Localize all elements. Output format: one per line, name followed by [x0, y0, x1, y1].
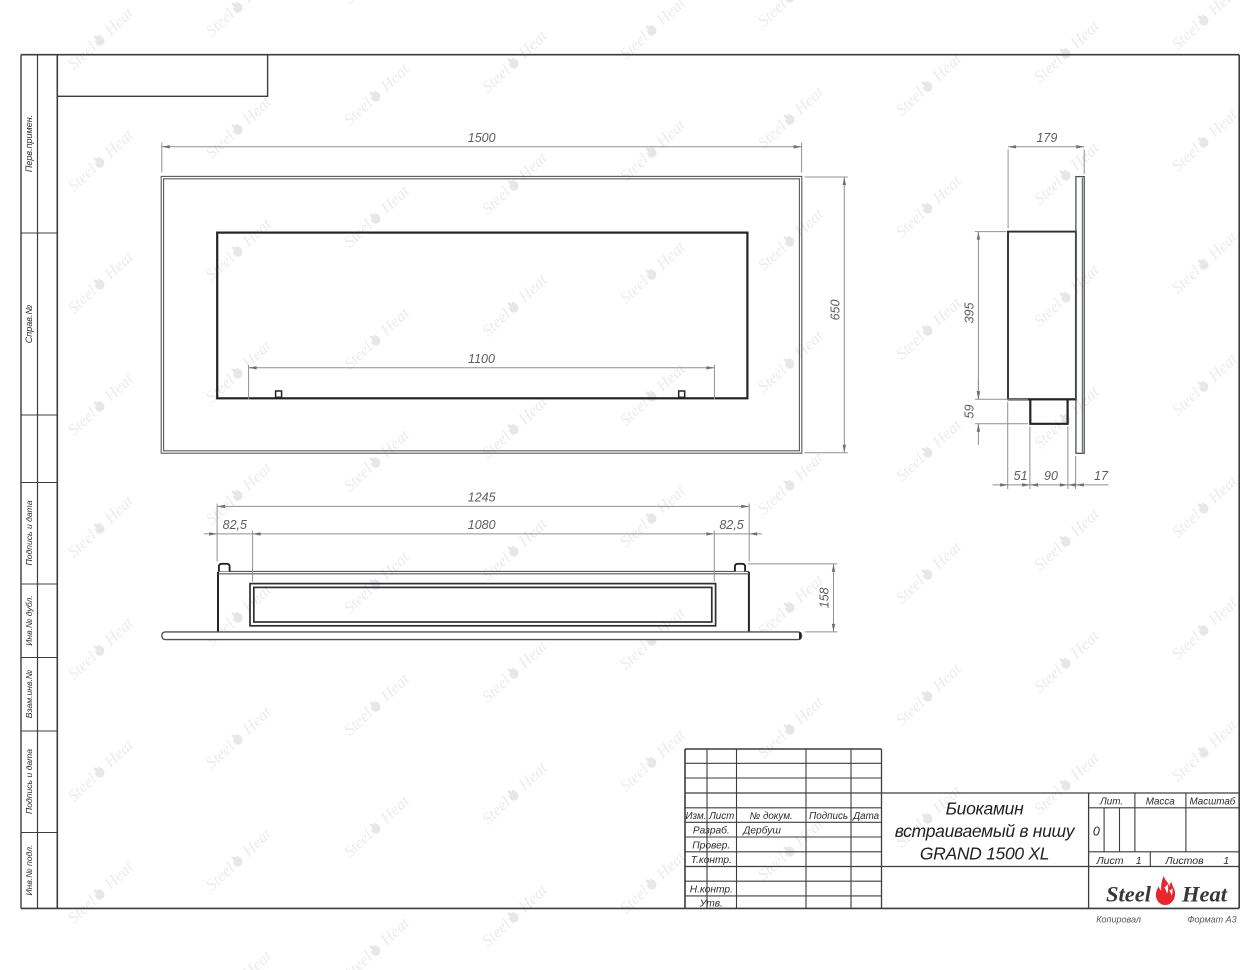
svg-text:Лит.: Лит.	[1099, 797, 1123, 808]
svg-text:Справ.№: Справ.№	[24, 305, 34, 344]
svg-text:17: 17	[1094, 469, 1109, 483]
svg-text:Steel: Steel	[1106, 882, 1152, 907]
svg-text:Разраб.: Разраб.	[693, 825, 730, 837]
svg-text:GRAND 1500 XL: GRAND 1500 XL	[920, 844, 1049, 864]
svg-text:1500: 1500	[468, 131, 496, 145]
svg-text:Провер.: Провер.	[692, 840, 730, 851]
svg-text:Масштаб: Масштаб	[1190, 797, 1236, 808]
svg-text:158: 158	[818, 587, 832, 608]
svg-text:650: 650	[829, 300, 843, 321]
svg-text:Листов: Листов	[1164, 855, 1204, 867]
svg-text:Перв.примен.: Перв.примен.	[24, 115, 34, 172]
svg-text:Подпись и дата: Подпись и дата	[24, 500, 34, 565]
svg-text:встраиваемый в нишу: встраиваемый в нишу	[895, 821, 1076, 841]
svg-text:1100: 1100	[468, 352, 495, 366]
svg-text:Дербуш: Дербуш	[742, 825, 781, 837]
svg-text:Н.контр.: Н.контр.	[690, 885, 733, 896]
svg-text:Биокамин: Биокамин	[946, 799, 1024, 819]
svg-text:59: 59	[963, 405, 977, 419]
svg-text:0: 0	[1093, 825, 1100, 839]
svg-text:Подпись и дата: Подпись и дата	[24, 749, 34, 814]
svg-text:1245: 1245	[468, 491, 496, 505]
svg-text:82,5: 82,5	[223, 518, 247, 532]
svg-text:Лист: Лист	[708, 811, 734, 822]
svg-text:Утв.: Утв.	[699, 899, 723, 910]
svg-text:Heat: Heat	[1181, 882, 1228, 907]
svg-text:Масса: Масса	[1146, 797, 1176, 808]
svg-text:Подпись: Подпись	[809, 811, 848, 822]
svg-text:Т.контр.: Т.контр.	[691, 855, 732, 866]
svg-text:Инв.№ подл.: Инв.№ подл.	[24, 845, 34, 896]
svg-text:Изм.: Изм.	[686, 811, 707, 822]
svg-text:179: 179	[1036, 131, 1057, 145]
svg-text:51: 51	[1014, 469, 1028, 483]
svg-text:395: 395	[963, 303, 977, 324]
svg-text:Формат А3: Формат А3	[1187, 915, 1236, 925]
svg-text:1: 1	[1136, 855, 1142, 867]
svg-text:1080: 1080	[468, 518, 496, 532]
svg-text:Взам.инв.№: Взам.инв.№	[24, 670, 34, 718]
svg-text:82,5: 82,5	[719, 518, 743, 532]
svg-text:Копировал: Копировал	[1096, 915, 1141, 925]
svg-text:1: 1	[1223, 855, 1229, 867]
svg-text:Инв.№ дубл.: Инв.№ дубл.	[24, 595, 34, 645]
svg-text:Дата: Дата	[852, 811, 879, 822]
svg-text:Лист: Лист	[1095, 855, 1123, 867]
svg-text:90: 90	[1044, 469, 1058, 483]
svg-text:№ докум.: № докум.	[750, 811, 793, 822]
